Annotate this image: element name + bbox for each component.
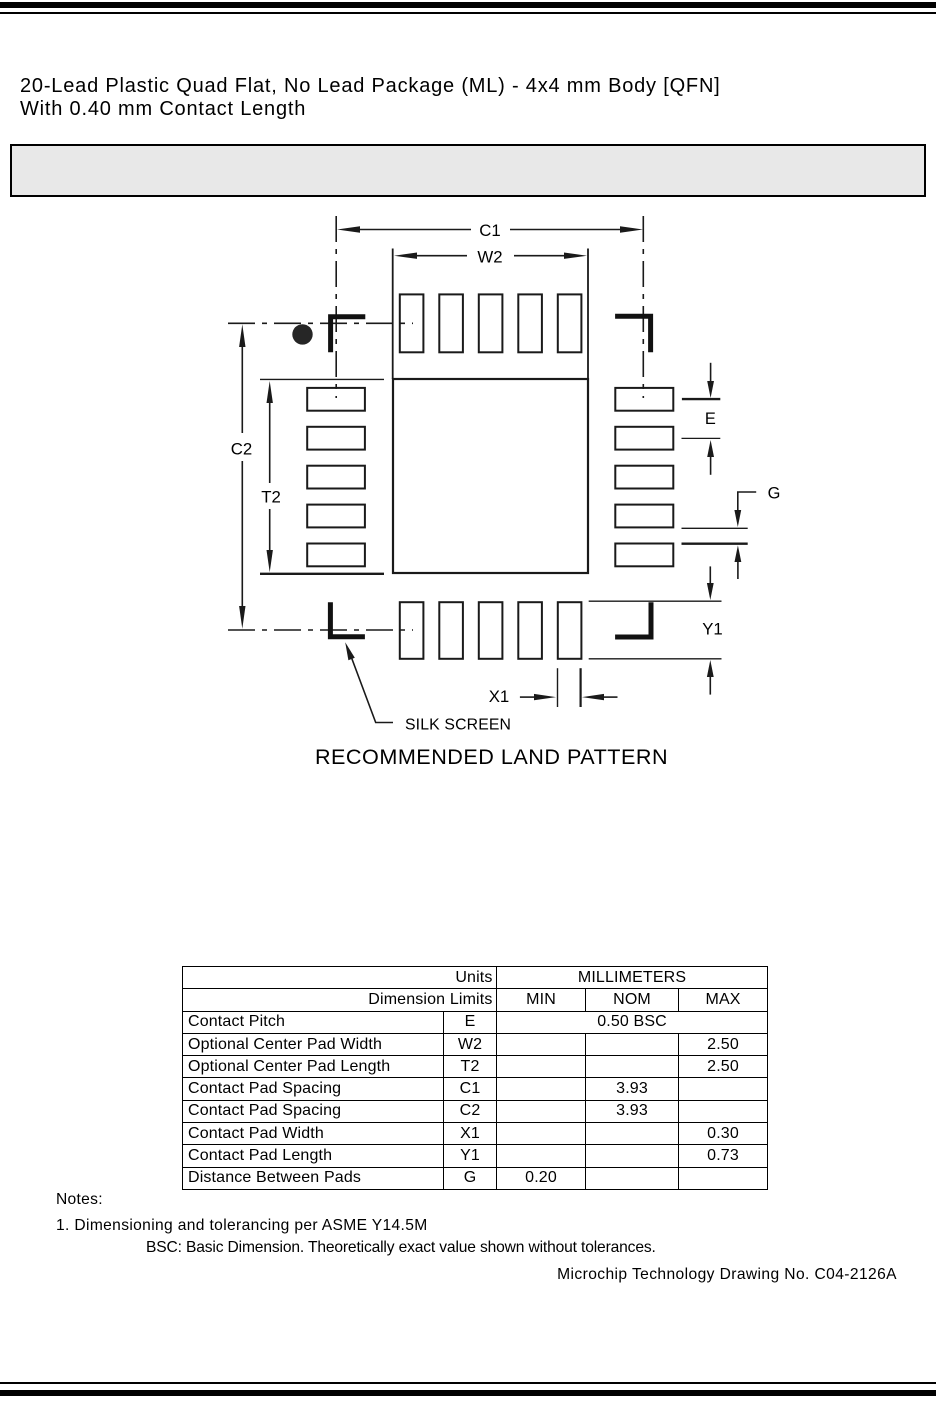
svg-text:SILK SCREEN: SILK SCREEN — [405, 717, 511, 734]
svg-text:C2: C2 — [231, 440, 252, 459]
svg-text:Y1: Y1 — [702, 619, 723, 638]
svg-text:W2: W2 — [477, 248, 502, 267]
svg-text:RECOMMENDED LAND PATTERN: RECOMMENDED LAND PATTERN — [315, 744, 668, 769]
svg-text:C1: C1 — [479, 221, 500, 240]
svg-text:X1: X1 — [489, 687, 510, 706]
svg-text:T2: T2 — [261, 487, 281, 506]
svg-text:G: G — [768, 485, 781, 503]
svg-text:E: E — [705, 410, 716, 428]
